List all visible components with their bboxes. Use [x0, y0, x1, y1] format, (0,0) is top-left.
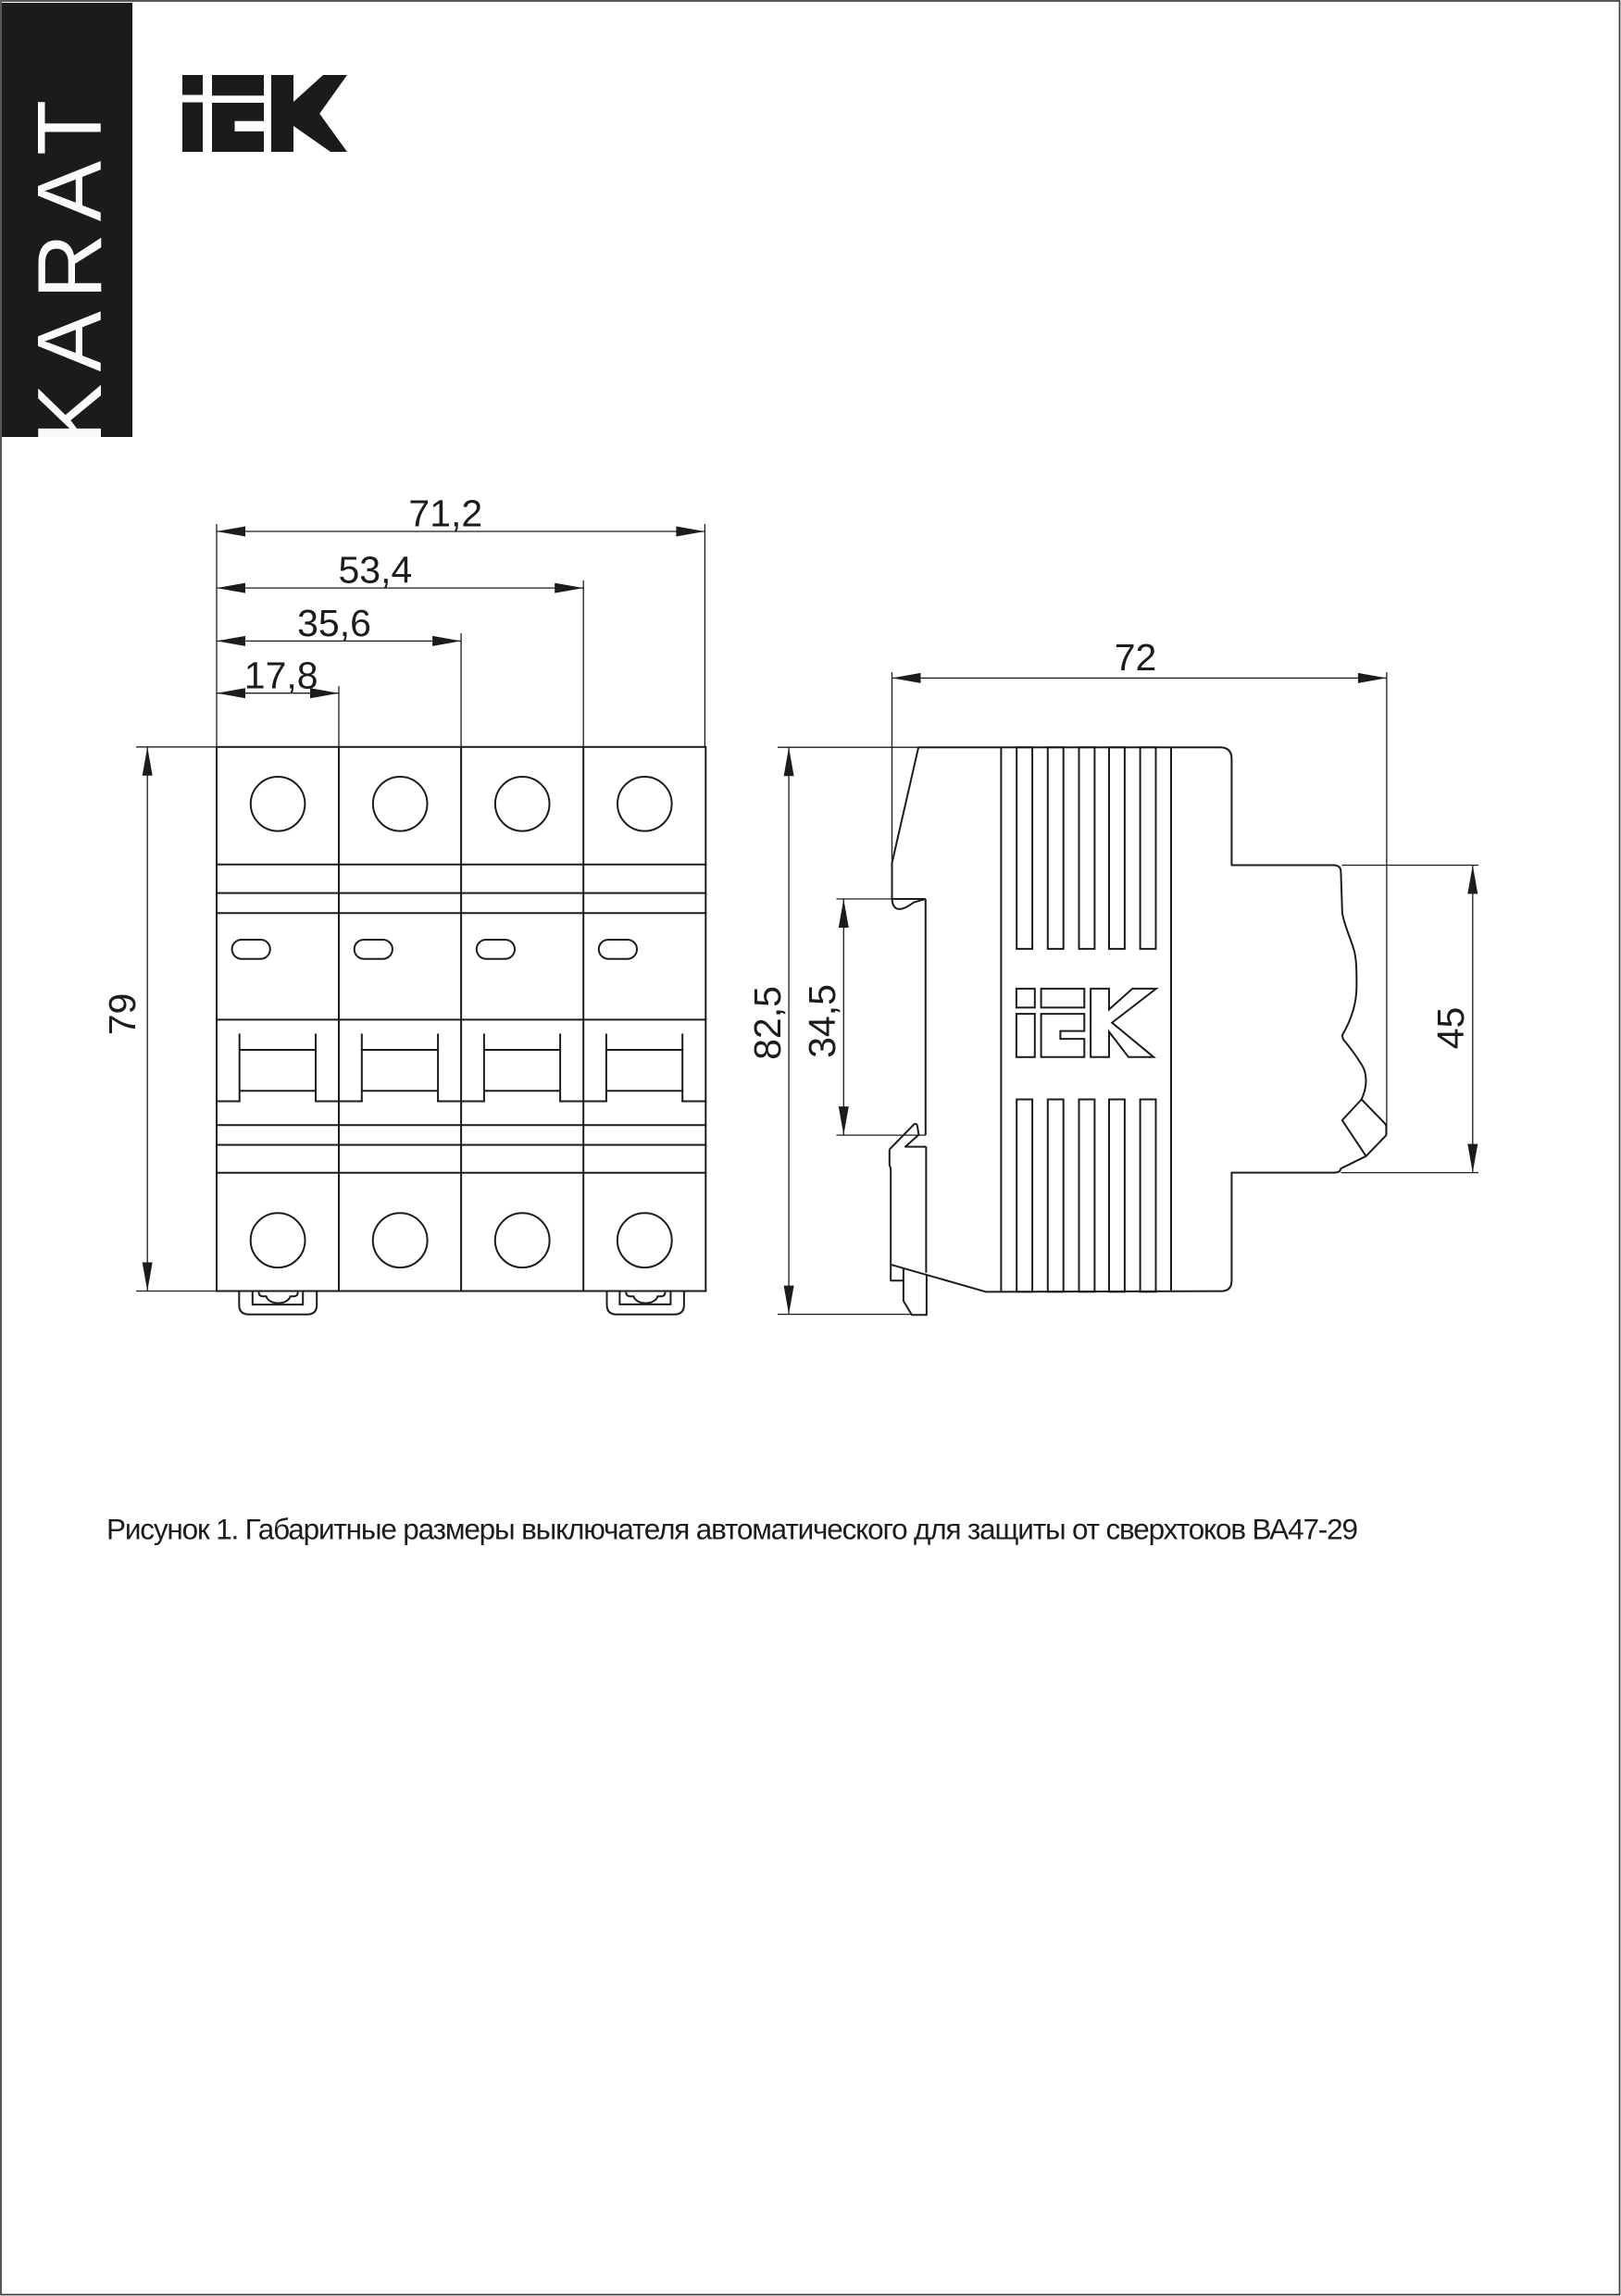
svg-text:17,8: 17,8: [244, 655, 318, 697]
svg-text:KARAT: KARAT: [19, 100, 120, 444]
svg-text:53,4: 53,4: [338, 549, 412, 592]
svg-text:72: 72: [1115, 636, 1157, 679]
svg-text:34,5: 34,5: [801, 984, 843, 1058]
svg-text:Рисунок 1. Габаритные размеры: Рисунок 1. Габаритные размеры выключател…: [106, 1512, 1358, 1545]
svg-text:71,2: 71,2: [408, 493, 482, 535]
svg-text:82,5: 82,5: [746, 986, 789, 1060]
svg-text:79: 79: [101, 993, 143, 1036]
svg-text:45: 45: [1429, 1007, 1472, 1050]
svg-text:35,6: 35,6: [297, 602, 371, 644]
